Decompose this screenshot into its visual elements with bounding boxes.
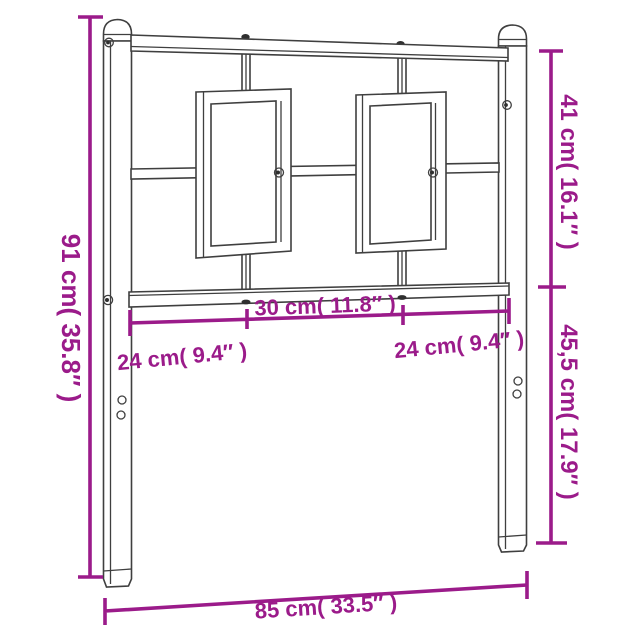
dimension-total-width: 85 cm( 33.5″ ) [105, 571, 527, 625]
lower-height-label: 45,5 cm( 17.9″ ) [555, 324, 582, 500]
bottom-rail-tab-right [398, 295, 407, 300]
headboard-dimension-diagram: 91 cm( 35.8″ ) 41 cm( 16.1″ ) 45,5 cm( 1… [0, 0, 640, 640]
center-spacing-label: 30 cm( 11.8″ ) [254, 291, 396, 321]
upper-height-label: 41 cm( 16.1″ ) [555, 94, 582, 250]
left-panel-inner [211, 101, 276, 246]
diagram-canvas: 91 cm( 35.8″ ) 41 cm( 16.1″ ) 45,5 cm( 1… [0, 0, 640, 640]
dimension-total-height: 91 cm( 35.8″ ) [56, 17, 103, 577]
right-post-cap [499, 25, 527, 46]
right-panel-screw [430, 171, 434, 175]
left-post [104, 20, 132, 588]
left-panel [196, 89, 291, 258]
left-panel-screw [276, 171, 280, 175]
total-width-label: 85 cm( 33.5″ ) [254, 589, 398, 623]
left-post-rail-screw [105, 298, 109, 302]
right-panel-inner [370, 103, 431, 244]
left-post-top-screw [106, 41, 110, 45]
right-panel [356, 92, 446, 253]
dimension-upper-height: 41 cm( 16.1″ ) [538, 51, 582, 287]
dimension-lower-height: 45,5 cm( 17.9″ ) [536, 287, 582, 543]
top-rail [131, 35, 508, 61]
total-height-label: 91 cm( 35.8″ ) [56, 234, 86, 403]
bottom-rail-tab-left [242, 300, 251, 305]
left-spacing-label: 24 cm( 9.4″ ) [116, 338, 248, 375]
left-post-body [104, 41, 132, 587]
right-post-screw [504, 103, 508, 107]
right-post-body [499, 46, 527, 552]
